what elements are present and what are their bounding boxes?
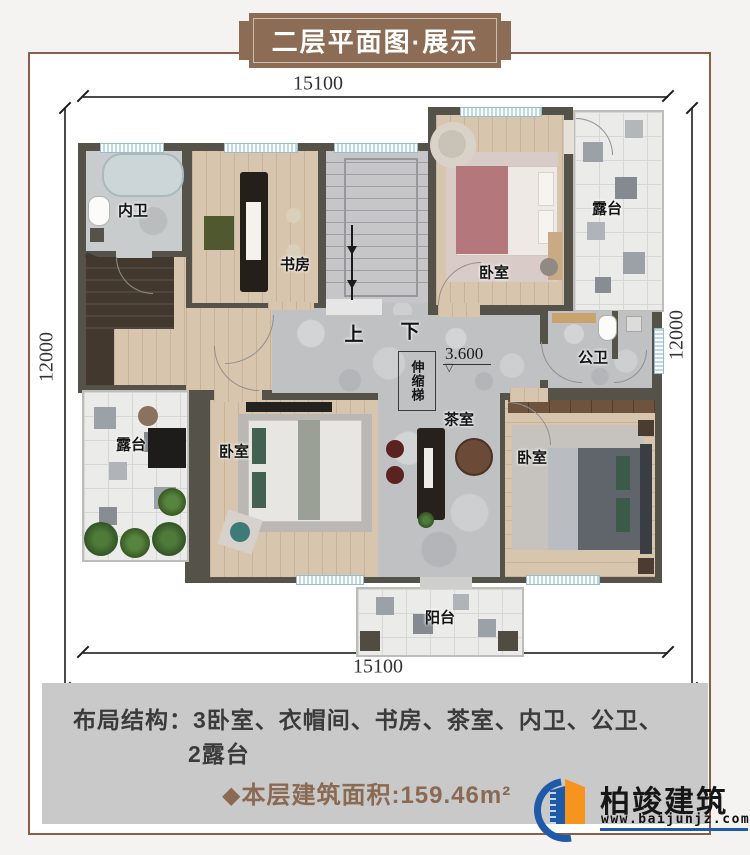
pillow <box>538 172 554 206</box>
round-chair-cushion <box>438 130 466 158</box>
desk-pad <box>246 202 261 260</box>
room-label-inner-bath: 内卫 <box>118 200 148 221</box>
rug <box>204 216 234 250</box>
retractable-ladder: 伸缩梯 <box>398 351 436 411</box>
room-label-study: 书房 <box>280 254 310 275</box>
tile-accent <box>615 177 637 199</box>
floor-area-text: ◆本层建筑面积:159.46m² <box>222 775 511 810</box>
layout-structure-line2: 2露台 <box>188 735 250 769</box>
armchair <box>455 438 493 476</box>
window <box>100 143 164 153</box>
corner-post <box>360 631 380 651</box>
plant <box>84 522 118 556</box>
sink-counter <box>552 313 596 323</box>
room-label-public-bath: 公卫 <box>578 347 608 368</box>
door-opening <box>268 302 314 310</box>
dimension-line <box>691 108 693 688</box>
tile-accent <box>478 619 496 637</box>
sink <box>90 228 104 242</box>
stool <box>540 258 558 276</box>
room-label-balcony: 阳台 <box>425 607 455 628</box>
corner-post <box>498 631 518 651</box>
window <box>654 328 664 374</box>
layout-structure-line1: 布局结构：3卧室、衣帽间、书房、茶室、内卫、公卫、 <box>73 701 663 735</box>
dimension-line <box>64 108 66 688</box>
tile-accent <box>453 594 469 610</box>
toilet <box>88 196 110 226</box>
tile-accent <box>623 252 645 274</box>
floor-cushion <box>386 466 404 484</box>
pillow <box>616 498 630 532</box>
stairs-up-label: 上 <box>344 320 363 347</box>
arrow-head-icon <box>347 280 357 289</box>
stair-railing <box>344 158 418 297</box>
layout-structure-content: 3卧室、衣帽间、书房、茶室、内卫、公卫、 <box>193 707 663 733</box>
window <box>334 143 418 153</box>
room-label-bedroom-bottom-right: 卧室 <box>517 447 547 468</box>
dimension-line <box>83 96 668 98</box>
arrow-head-icon <box>347 246 357 255</box>
headboard <box>640 444 652 554</box>
window <box>460 107 542 117</box>
tile-accent <box>94 407 116 429</box>
plant <box>158 488 186 516</box>
dimension-value: 15100 <box>293 73 343 96</box>
wardrobe <box>86 329 114 385</box>
shower <box>626 316 642 332</box>
pillow <box>252 472 266 508</box>
tv-cabinet <box>246 402 332 412</box>
logo-building-icon <box>550 786 565 824</box>
bed-blanket <box>456 166 508 254</box>
elevation-marker: 3.600 ▽ <box>443 344 491 364</box>
tile-accent <box>625 120 643 138</box>
stair-landing <box>326 299 382 315</box>
tile-accent <box>109 462 127 480</box>
stairs-down-label: 下 <box>400 317 419 344</box>
elevation-triangle-icon: ▽ <box>445 361 453 374</box>
tile-accent <box>587 222 605 240</box>
window <box>296 575 364 585</box>
nightstand <box>638 420 654 436</box>
door-opening <box>564 120 574 154</box>
retractable-ladder-label: 伸缩梯 <box>408 360 427 402</box>
room-label-terrace-right: 露台 <box>592 198 622 219</box>
nightstand <box>638 558 654 574</box>
plant <box>418 512 434 528</box>
bed-sheet <box>548 448 578 550</box>
dimension-value: 15100 <box>353 656 403 679</box>
company-website: www.baijunjz.com <box>601 812 750 827</box>
door-opening <box>510 388 548 402</box>
door-opening <box>420 577 472 589</box>
page-title: 二层平面图·展示 <box>239 13 511 68</box>
company-logo: 柏竣建筑 www.baijunjz.com <box>538 770 750 842</box>
tea-table-runner <box>424 448 433 488</box>
plant <box>152 522 186 556</box>
room-label-bedroom-top-right: 卧室 <box>479 262 509 283</box>
door-opening <box>438 303 480 317</box>
plant <box>120 528 150 558</box>
chair-cushion <box>230 522 250 542</box>
bed-runner <box>298 420 320 520</box>
room-label-tea-room: 茶室 <box>444 409 474 430</box>
dimension-value: 12000 <box>36 332 59 382</box>
bench <box>148 428 186 468</box>
bathtub <box>102 153 184 197</box>
dimension-value: 12000 <box>666 310 689 360</box>
room-label-terrace-left: 露台 <box>116 434 146 455</box>
room-label-bedroom-bottom-left: 卧室 <box>219 441 249 462</box>
floor-cushion <box>386 440 404 458</box>
tile-accent <box>376 597 394 615</box>
planter-pot <box>138 406 158 426</box>
tile-accent <box>595 277 611 293</box>
logo-underline <box>600 828 748 831</box>
window <box>224 143 298 153</box>
title-banner: 二层平面图·展示 <box>239 13 511 68</box>
toilet <box>598 315 617 341</box>
pillow <box>616 456 630 490</box>
stool <box>286 208 301 223</box>
pillow <box>252 428 266 464</box>
layout-structure-label: 布局结构： <box>73 707 193 733</box>
window <box>526 575 600 585</box>
